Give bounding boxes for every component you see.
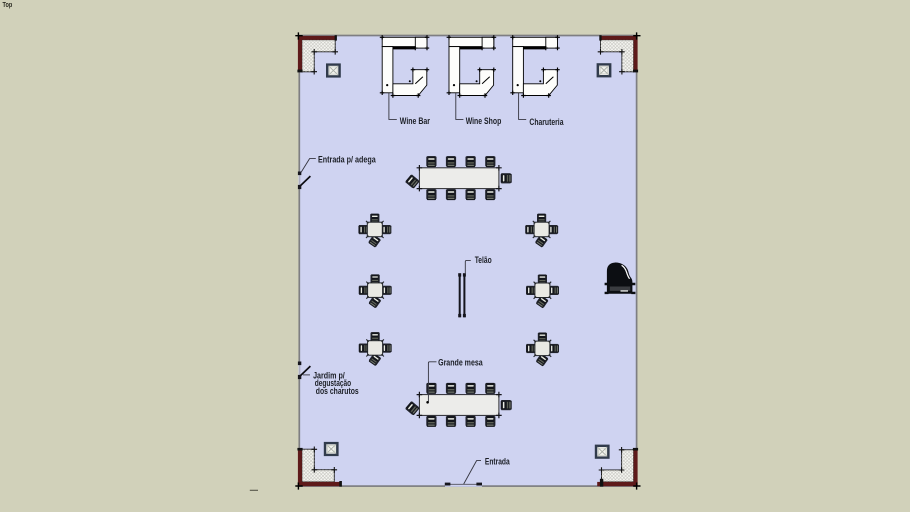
svg-text:dos charutos: dos charutos — [316, 386, 359, 396]
svg-text:Telão: Telão — [475, 255, 492, 265]
svg-text:Grande mesa: Grande mesa — [438, 357, 483, 367]
svg-text:Entrada: Entrada — [485, 456, 510, 466]
svg-text:Top: Top — [3, 0, 13, 9]
svg-text:Wine Shop: Wine Shop — [466, 116, 502, 126]
svg-text:Charuteria: Charuteria — [529, 117, 564, 127]
svg-text:Wine Bar: Wine Bar — [400, 116, 430, 126]
svg-text:Entrada p/ adega: Entrada p/ adega — [318, 154, 376, 164]
